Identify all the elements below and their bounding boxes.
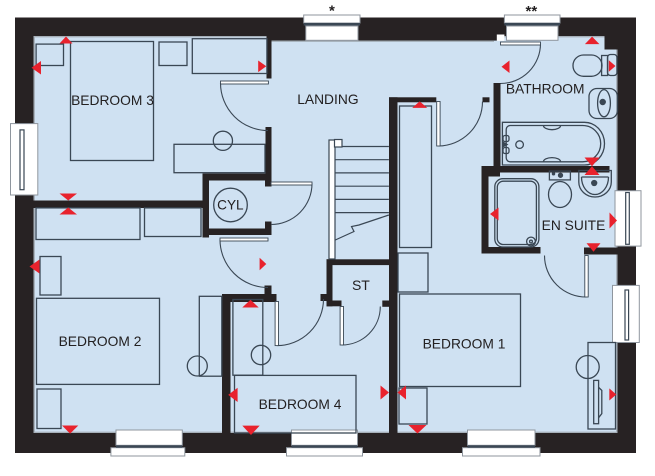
- svg-text:BEDROOM 1: BEDROOM 1: [423, 337, 506, 352]
- svg-text:BEDROOM 3: BEDROOM 3: [71, 93, 154, 108]
- svg-text:BEDROOM 2: BEDROOM 2: [59, 334, 142, 349]
- svg-text:CYL: CYL: [217, 197, 244, 212]
- svg-text:LANDING: LANDING: [297, 92, 358, 107]
- svg-text:BATHROOM: BATHROOM: [506, 82, 585, 97]
- svg-text:**: **: [526, 3, 538, 20]
- svg-text:ST: ST: [352, 277, 370, 293]
- svg-text:EN SUITE: EN SUITE: [542, 218, 606, 233]
- svg-text:BEDROOM 4: BEDROOM 4: [259, 397, 342, 412]
- svg-text:*: *: [329, 3, 335, 20]
